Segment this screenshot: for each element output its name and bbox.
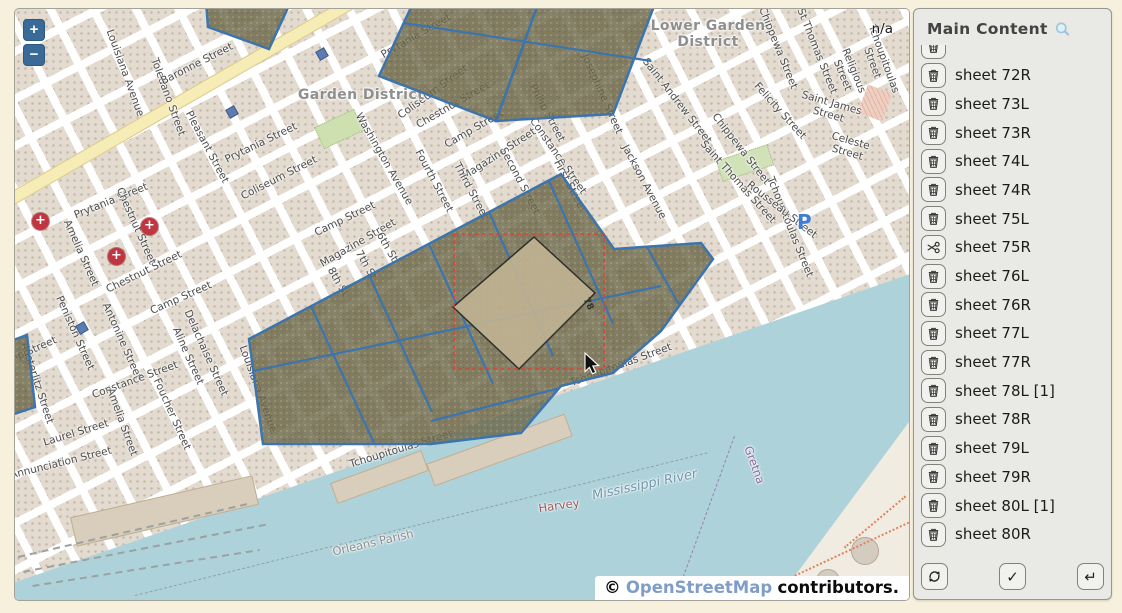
- trash-icon: [926, 355, 941, 370]
- trash-button[interactable]: [921, 350, 946, 375]
- attribution-copyright: ©: [604, 578, 621, 597]
- trash-icon: [926, 469, 941, 484]
- trash-icon: [926, 125, 941, 140]
- check-icon: ✓: [1006, 568, 1019, 586]
- trash-icon: [926, 154, 941, 169]
- list-item-label: sheet 75L: [955, 210, 1029, 228]
- list-item: sheet 74L: [921, 149, 1104, 174]
- return-button[interactable]: ↵: [1077, 563, 1104, 590]
- trash-button[interactable]: [921, 177, 946, 202]
- list-item: sheet 78R: [921, 407, 1104, 432]
- refresh-icon: [927, 569, 942, 584]
- list-item-label: sheet 76R: [955, 296, 1031, 314]
- list-item-label: sheet 78R: [955, 410, 1031, 428]
- trash-button[interactable]: [921, 149, 946, 174]
- hospital-marker: +: [108, 248, 125, 265]
- list-item: sheet 78L [1]: [921, 378, 1104, 403]
- refresh-button[interactable]: [921, 563, 948, 590]
- sidebar-panel: Main Content sheet 72Rsheet 73Lsheet 73R…: [913, 8, 1112, 600]
- trash-icon: [926, 68, 941, 83]
- list-item-label: sheet 72R: [955, 66, 1031, 84]
- list-item: sheet 80L [1]: [921, 493, 1104, 518]
- list-item: sheet 75L: [921, 206, 1104, 231]
- list-item-label: sheet 74L: [955, 152, 1029, 170]
- trash-button[interactable]: [921, 378, 946, 403]
- list-item-label: sheet 73L: [955, 95, 1029, 113]
- trash-icon: [926, 96, 941, 111]
- trash-icon: [926, 412, 941, 427]
- search-icon[interactable]: [1054, 21, 1071, 38]
- list-item: sheet 77L: [921, 321, 1104, 346]
- return-icon: ↵: [1084, 568, 1097, 586]
- openstreetmap-link[interactable]: OpenStreetMap: [626, 578, 772, 597]
- confirm-button[interactable]: ✓: [999, 563, 1026, 590]
- parking-icon: P: [797, 210, 812, 234]
- trash-icon: [926, 383, 941, 398]
- trash-button[interactable]: [921, 206, 946, 231]
- sidebar-title: Main Content: [927, 20, 1048, 38]
- trash-icon: [926, 269, 941, 284]
- zoom-controls: + −: [23, 19, 45, 66]
- list-item-partial: [921, 45, 1104, 59]
- list-item-label: sheet 80R: [955, 525, 1031, 543]
- list-item: sheet 79R: [921, 464, 1104, 489]
- app-window: Louisiana AvenueToledano StreetBaronne S…: [0, 0, 1122, 613]
- trash-button[interactable]: [921, 120, 946, 145]
- list-item: sheet 72R: [921, 63, 1104, 88]
- list-item-label: sheet 79R: [955, 468, 1031, 486]
- scissors-icon: [926, 240, 941, 255]
- trash-icon: [926, 182, 941, 197]
- trash-button[interactable]: [921, 522, 946, 547]
- trash-icon: [926, 297, 941, 312]
- hospital-marker: +: [141, 218, 158, 235]
- list-item: sheet 73R: [921, 120, 1104, 145]
- trash-button[interactable]: [921, 45, 946, 59]
- map-canvas[interactable]: Louisiana AvenueToledano StreetBaronne S…: [14, 8, 910, 601]
- trash-button[interactable]: [921, 91, 946, 116]
- trash-button[interactable]: [921, 493, 946, 518]
- trash-icon: [926, 527, 941, 542]
- list-item-label: sheet 77L: [955, 324, 1029, 342]
- sidebar-footer: ✓ ↵: [921, 563, 1104, 590]
- list-item-label: sheet 74R: [955, 181, 1031, 199]
- trash-icon: [926, 45, 941, 54]
- zoom-out-button[interactable]: −: [23, 44, 45, 66]
- list-item: sheet 76R: [921, 292, 1104, 317]
- list-item-label: sheet 79L: [955, 439, 1029, 457]
- list-item-label: sheet 80L [1]: [955, 497, 1055, 515]
- trash-button[interactable]: [921, 464, 946, 489]
- status-readout: n/a: [872, 21, 893, 37]
- trash-icon: [926, 441, 941, 456]
- trash-icon: [926, 326, 941, 341]
- trash-button[interactable]: [921, 321, 946, 346]
- sidebar-header: Main Content: [927, 20, 1071, 38]
- hospital-marker: +: [32, 213, 49, 230]
- list-item: sheet 73L: [921, 91, 1104, 116]
- list-item-label: sheet 76L: [955, 267, 1029, 285]
- list-item: sheet 80R: [921, 522, 1104, 547]
- trash-button[interactable]: [921, 292, 946, 317]
- trash-button[interactable]: [921, 407, 946, 432]
- list-item-label: sheet 73R: [955, 124, 1031, 142]
- map-attribution: © OpenStreetMap contributors.: [595, 576, 909, 600]
- trash-button[interactable]: [921, 63, 946, 88]
- list-item-label: sheet 75R: [955, 238, 1031, 256]
- sheet-list: sheet 72Rsheet 73Lsheet 73Rsheet 74Lshee…: [921, 45, 1104, 547]
- zoom-in-button[interactable]: +: [23, 19, 45, 41]
- list-item: sheet 74R: [921, 177, 1104, 202]
- list-item: sheet 79L: [921, 436, 1104, 461]
- trash-button[interactable]: [921, 264, 946, 289]
- list-item: sheet 75R: [921, 235, 1104, 260]
- list-item-label: sheet 78L [1]: [955, 382, 1055, 400]
- scissors-button[interactable]: [921, 235, 946, 260]
- trash-button[interactable]: [921, 436, 946, 461]
- trash-icon: [926, 211, 941, 226]
- list-item: sheet 77R: [921, 350, 1104, 375]
- list-item: sheet 76L: [921, 264, 1104, 289]
- trash-icon: [926, 498, 941, 513]
- attribution-suffix: contributors.: [777, 578, 899, 597]
- list-item-label: sheet 77R: [955, 353, 1031, 371]
